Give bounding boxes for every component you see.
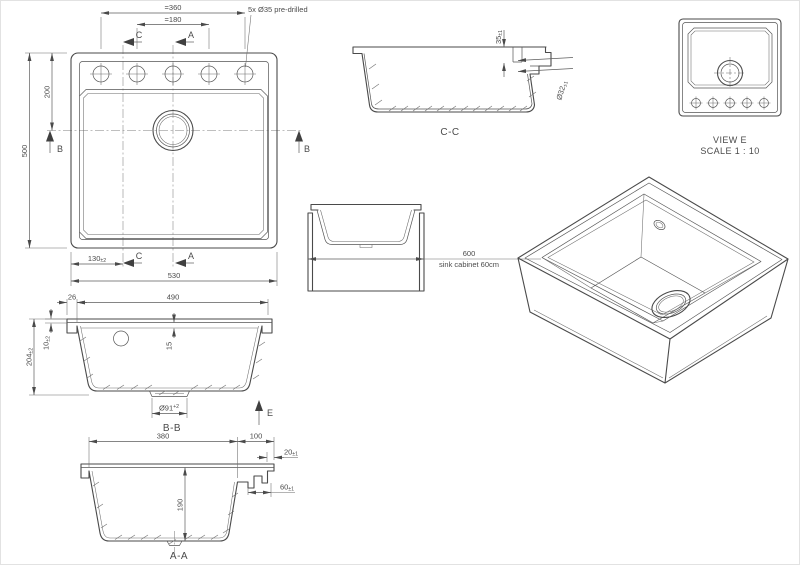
section-marker-a-bottom: A <box>188 251 194 261</box>
dim-overall-height: 204±2 <box>25 348 35 366</box>
dim-inner-width: 490 <box>167 293 180 302</box>
section-marker-c-top: C <box>136 30 143 40</box>
plan-view: =360 =180 5x Ø35 pre-drilled C A C A B B… <box>20 3 310 286</box>
view-e-holes <box>690 97 771 110</box>
dim-bowl-depth: 190 <box>176 499 185 512</box>
section-cc-title: C-C <box>440 127 459 138</box>
section-marker-c-bottom: C <box>136 251 143 261</box>
dim-hole-span-inner: =180 <box>165 15 182 24</box>
dim-c-offset: 130±2 <box>88 254 106 264</box>
dim-drain-dia: Ø91+2 <box>159 404 179 413</box>
technical-drawing-sheet: =360 =180 5x Ø35 pre-drilled C A C A B B… <box>0 0 800 565</box>
section-cc-view: 35±1 Ø32±1 C-C <box>353 30 573 138</box>
iso-overflow-hole <box>652 218 666 231</box>
dim-center-from-top: 200 <box>43 86 52 99</box>
view-e-drain <box>714 57 746 89</box>
section-marker-a-top: A <box>188 30 194 40</box>
cabinet-dim-width: 600 <box>463 249 476 258</box>
dim-hole-dia: Ø32±1 <box>554 79 569 101</box>
dim-hole-span: =360 <box>165 3 182 12</box>
dim-ledge: 15 <box>165 342 174 350</box>
dim-step: 20±1 <box>284 448 298 458</box>
isometric-view <box>518 177 788 383</box>
tap-holes <box>90 63 256 85</box>
view-e: VIEW E SCALE 1 : 10 <box>679 19 781 156</box>
view-e-scale: SCALE 1 : 10 <box>700 146 759 156</box>
section-bb-view: 26 490 10±2 204±2 15 Ø91+2 E B-B <box>25 293 274 435</box>
dim-deck-depth: 35±1 <box>494 30 504 44</box>
holes-note: 5x Ø35 pre-drilled <box>248 5 308 14</box>
view-direction-e: E <box>267 408 273 418</box>
section-marker-b-right: B <box>304 144 310 154</box>
dim-height: 500 <box>20 145 29 158</box>
section-aa-title: A-A <box>170 551 188 562</box>
section-aa-view: 380 100 20±1 60±1 190 A-A <box>81 432 298 563</box>
dim-lip: 26 <box>68 293 76 302</box>
dim-ledge-depth: 60±1 <box>280 483 294 493</box>
section-marker-b-left: B <box>57 144 63 154</box>
cabinet-caption: sink cabinet 60cm <box>439 260 499 269</box>
cabinet-elevation: 600 sink cabinet 60cm <box>308 205 541 292</box>
dim-bowl-width: 380 <box>157 432 170 441</box>
dim-rim: 10±2 <box>42 336 52 350</box>
overflow-hole <box>114 331 129 346</box>
dim-deck-width: 100 <box>250 432 263 441</box>
dim-width: 530 <box>168 271 181 280</box>
view-e-title: VIEW E <box>713 135 747 145</box>
